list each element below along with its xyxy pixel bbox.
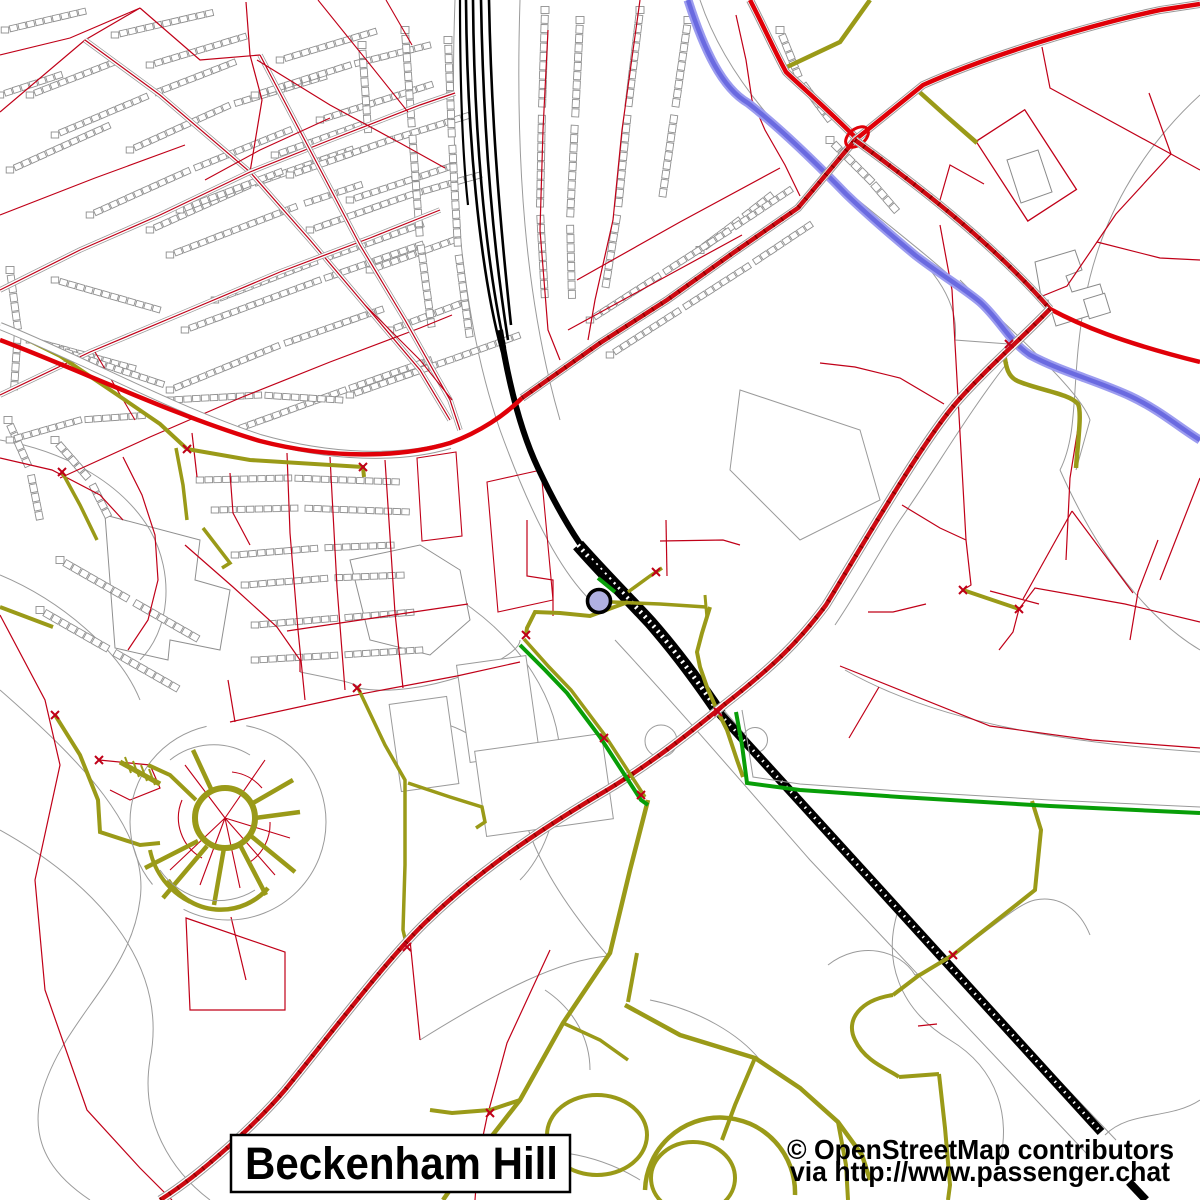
svg-text:Beckenham Hill: Beckenham Hill: [245, 1138, 558, 1189]
svg-text:via http://www.passenger.chat: via http://www.passenger.chat: [790, 1156, 1170, 1187]
